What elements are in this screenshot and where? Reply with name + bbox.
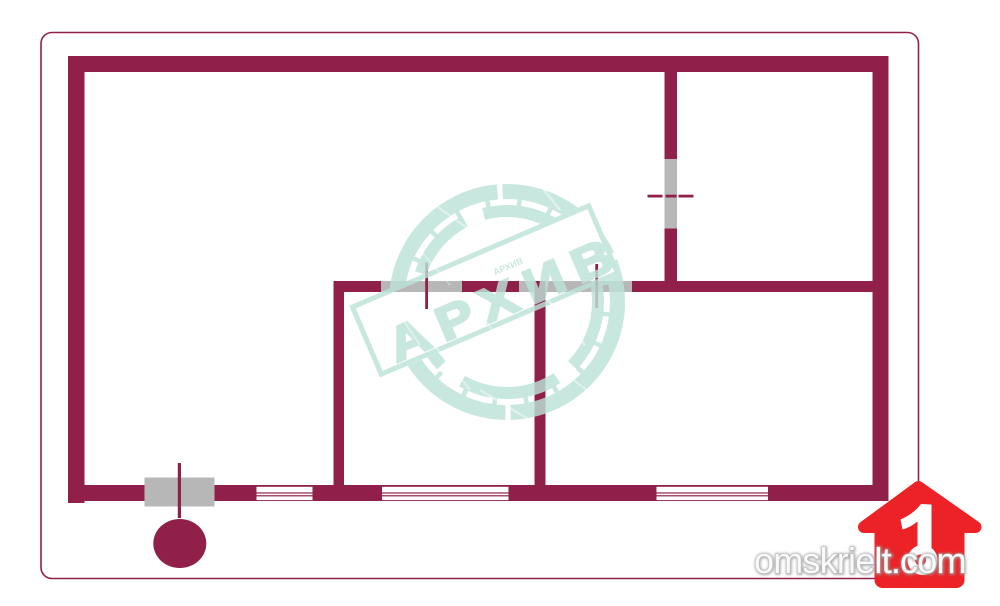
- svg-text:omskrielt.com: omskrielt.com: [754, 540, 966, 581]
